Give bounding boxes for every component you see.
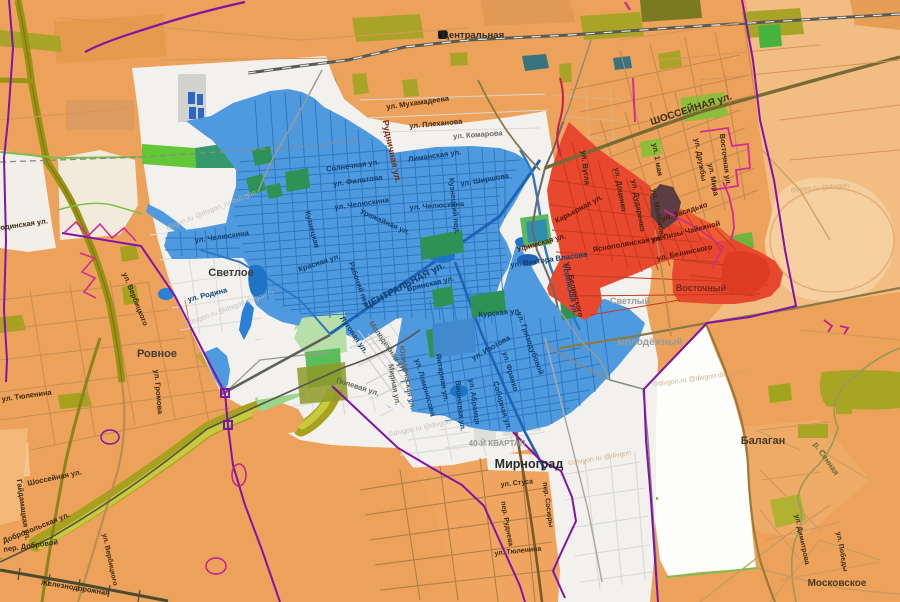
svg-text:Ровное: Ровное (137, 348, 177, 360)
svg-text:Светлый: Светлый (610, 296, 650, 306)
svg-text:молодёжный: молодёжный (617, 337, 682, 348)
svg-text:Светлое: Светлое (208, 267, 253, 279)
svg-text:Балаган: Балаган (741, 435, 785, 447)
svg-text:Мирноград: Мирноград (495, 457, 564, 471)
svg-text:40-Й КВАРТАЛ: 40-Й КВАРТАЛ (469, 439, 526, 448)
svg-text:Восточный: Восточный (676, 283, 726, 293)
svg-text:Центральная: Центральная (442, 30, 504, 41)
svg-text:Московское: Московское (808, 578, 867, 589)
